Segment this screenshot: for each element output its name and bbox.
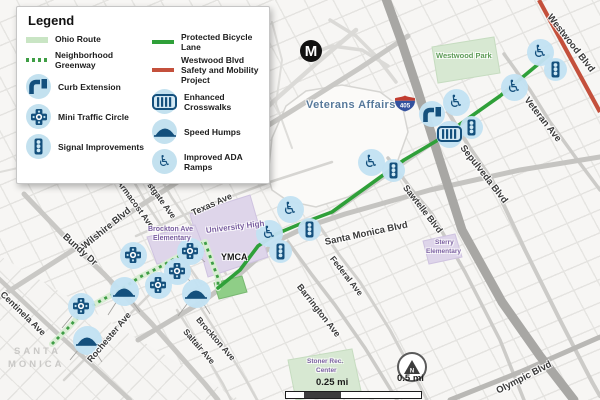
enhanced-crosswalk-icon: [152, 94, 177, 110]
area-label: Veterans Affairs: [306, 99, 396, 111]
legend-icon-circle: [152, 119, 177, 144]
legend-items: Ohio RouteNeighborhood GreenwayCurb Exte…: [26, 32, 260, 175]
street-label: Santa Monica Blvd: [324, 220, 409, 248]
scale-half-label: 0.5 mi: [397, 373, 424, 384]
legend-icon-circle: [26, 104, 51, 129]
legend-column: Protected Bicycle LaneWestwood Blvd Safe…: [152, 32, 260, 175]
legend-item-label: Ohio Route: [55, 34, 101, 44]
area-label: Westwood Park: [436, 51, 492, 60]
metro-label: M: [305, 43, 318, 60]
legend-item: Westwood Blvd Safety and Mobility Projec…: [152, 55, 260, 85]
ada-ramp-icon: ♿: [158, 154, 171, 169]
legend-icon-circle: [26, 74, 51, 99]
legend-item-label: Signal Improvements: [58, 142, 144, 152]
legend-item-label: Enhanced Crosswalks: [184, 92, 260, 112]
legend-item-label: Improved ADA Ramps: [184, 152, 260, 172]
street-label: Sepulveda Blvd: [458, 143, 510, 206]
legend-item: Ohio Route: [26, 32, 148, 47]
legend-column: Ohio RouteNeighborhood GreenwayCurb Exte…: [26, 32, 148, 175]
greenway-swatch: [26, 58, 48, 62]
area-label: SANTA: [14, 346, 61, 357]
legend-icon-circle: [26, 134, 51, 159]
map-canvas: ♿♿♿♿♿♿ Westwood BlvdVeteran AveSepulveda…: [0, 0, 600, 400]
legend-item: Enhanced Crosswalks: [152, 88, 260, 115]
bikelane-swatch: [152, 40, 174, 44]
street-label: Centinela Ave: [0, 289, 48, 337]
interstate-405-shield-icon: 405: [394, 95, 416, 117]
legend-item: Neighborhood Greenway: [26, 50, 148, 70]
metro-station-icon: M: [300, 40, 322, 62]
legend-item-label: Speed Humps: [184, 127, 241, 137]
area-label: Elementary: [153, 235, 191, 242]
legend-panel: Legend Ohio RouteNeighborhood GreenwayCu…: [16, 6, 270, 184]
traffic-signal-icon: [33, 138, 44, 155]
street-label: Rochester Ave: [85, 310, 133, 364]
legend-item: Mini Traffic Circle: [26, 103, 148, 130]
area-label: YMCA: [221, 252, 248, 262]
legend-item: Protected Bicycle Lane: [152, 32, 260, 52]
legend-item-label: Curb Extension: [58, 82, 121, 92]
area-label: Brockton Ave: [148, 226, 193, 233]
ohio-swatch: [26, 37, 48, 43]
legend-title: Legend: [28, 13, 260, 28]
svg-text:405: 405: [400, 102, 411, 109]
area-label: MONICA: [8, 359, 65, 370]
area-label: Elementary: [426, 248, 461, 255]
legend-icon-circle: ♿: [152, 149, 177, 174]
street-label: Federal Ave: [328, 254, 365, 298]
westwood-swatch: [152, 68, 174, 72]
legend-item-label: Westwood Blvd Safety and Mobility Projec…: [181, 55, 260, 85]
area-label: University High: [205, 219, 264, 235]
area-label: Sterry: [435, 239, 454, 246]
street-label: Wilshire Blvd: [80, 205, 134, 251]
legend-item-label: Protected Bicycle Lane: [181, 32, 260, 52]
legend-item-label: Mini Traffic Circle: [58, 112, 129, 122]
street-label: Olympic Blvd: [495, 359, 554, 396]
speed-hump-icon: [154, 126, 176, 137]
area-label: Stoner Rec.: [307, 358, 343, 365]
scale-bar: [285, 391, 422, 399]
legend-item: Speed Humps: [152, 118, 260, 145]
street-label: Veteran Ave: [522, 95, 564, 144]
street-label: Barrington Ave: [295, 282, 342, 339]
legend-item-label: Neighborhood Greenway: [55, 50, 148, 70]
street-label: Texas Ave: [190, 191, 234, 218]
area-label: Center: [316, 367, 337, 374]
scale-quarter-label: 0.25 mi: [316, 377, 348, 388]
legend-icon-circle: [152, 89, 177, 114]
street-label: Westwood Blvd: [545, 12, 597, 74]
legend-item: Curb Extension: [26, 73, 148, 100]
legend-item: Signal Improvements: [26, 133, 148, 160]
curb-extension-icon: [29, 78, 48, 95]
legend-item: ♿Improved ADA Ramps: [152, 148, 260, 175]
mini-traffic-circle-icon: [27, 105, 51, 129]
